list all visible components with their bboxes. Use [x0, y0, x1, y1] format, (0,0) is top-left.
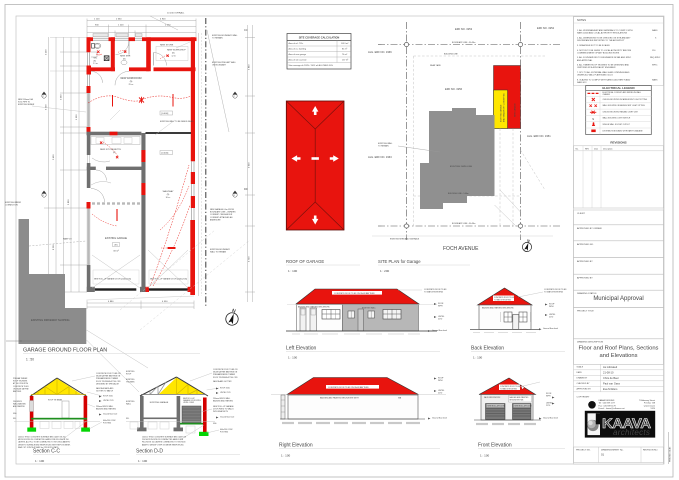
- svg-text:AND SHADEPORT CONVERTED: AND SHADEPORT CONVERTED: [503, 93, 506, 122]
- svg-text:P.O.Box 748: P.O.Box 748: [644, 403, 656, 405]
- svg-text:6 000: 6 000: [46, 104, 48, 110]
- svg-text:[0.000]: [0.000]: [162, 113, 169, 115]
- svg-text:LINTEL 2170: LINTEL 2170: [103, 400, 114, 402]
- svg-text:5. ALL FOUNDATIONS TO ENGINEER: 5. ALL FOUNDATIONS TO ENGINEERS DETAIL A…: [577, 56, 632, 59]
- svg-text:Paul van Gass: Paul van Gass: [603, 381, 621, 385]
- svg-text:ALG. ERF NO. 1966: ALG. ERF NO. 1966: [368, 50, 392, 54]
- svg-text:ROOF OF GARAGE: ROOF OF GARAGE: [286, 259, 324, 264]
- svg-text:ROOF TRUSSES AT 760 CRS: ROOF TRUSSES AT 760 CRS: [96, 380, 121, 383]
- svg-text:WPH: WPH: [546, 396, 551, 398]
- svg-text:[0.000]: [0.000]: [162, 153, 169, 155]
- svg-text:NOTES: NOTES: [577, 18, 586, 22]
- svg-text:WPH: WPH: [549, 306, 554, 308]
- svg-text:2. ALL DIMENSIONS TO BE CHECKE: 2. ALL DIMENSIONS TO BE CHECKED ON SITE …: [577, 37, 631, 40]
- svg-text:230mm BRICK WALL: 230mm BRICK WALL: [96, 405, 113, 408]
- svg-text:33 m²: 33 m²: [113, 250, 119, 253]
- svg-text:SPEC: SPEC: [652, 65, 658, 67]
- svg-text:LINTEL 2170: LINTEL 2170: [220, 392, 231, 394]
- svg-text:4 900: 4 900: [160, 19, 166, 21]
- svg-text:EXISTING KERB AND SIDEWALK: EXISTING KERB AND SIDEWALK: [390, 238, 420, 241]
- svg-text:FACE BRICKWORK: FACE BRICKWORK: [484, 396, 501, 399]
- svg-text:(N): (N): [130, 81, 133, 83]
- svg-text:ERF NO. 1952: ERF NO. 1952: [537, 26, 555, 30]
- svg-text:BRICKWORK NIB: BRICKWORK NIB: [510, 399, 525, 401]
- svg-text:NEW 110mm DIA: NEW 110mm DIA: [18, 98, 34, 101]
- svg-text:CEILING MOUNTED INCANDESCENT L: CEILING MOUNTED INCANDESCENT LIGHT FITTI…: [603, 98, 648, 101]
- svg-text:CC: CC: [244, 29, 248, 32]
- svg-text:EXISTING GARAGE: EXISTING GARAGE: [105, 237, 127, 240]
- svg-text:1013 m²: 1013 m²: [341, 42, 349, 45]
- svg-text:PREFABRICATED TIMBER: PREFABRICATED TIMBER: [96, 377, 119, 380]
- svg-text:BATTENS: BATTENS: [13, 390, 22, 393]
- svg-text:MICRON DPM ON COMPACTED HARDCO: MICRON DPM ON COMPACTED HARDCORE FILLING…: [18, 438, 69, 441]
- svg-text:21-08-10: 21-08-10: [603, 370, 614, 374]
- svg-text:2170: 2170: [438, 393, 442, 395]
- svg-text:ALG. ERF NO. 1951: ALG. ERF NO. 1951: [527, 134, 551, 138]
- svg-text:PROJECT NO.: PROJECT NO.: [576, 450, 591, 452]
- svg-text:7 Blakeway Street: 7 Blakeway Street: [639, 399, 656, 402]
- svg-text:3 400: 3 400: [53, 154, 55, 160]
- svg-text:WITH BRACKETS: WITH BRACKETS: [213, 410, 229, 413]
- svg-text:BOUNDARY LINE - 30.48m: BOUNDARY LINE - 30.48m: [452, 222, 476, 225]
- svg-text:FOOTING: FOOTING: [103, 423, 112, 425]
- svg-text:30 m²: 30 m²: [166, 196, 171, 199]
- svg-text:Eva M Allers: Eva M Allers: [603, 387, 618, 391]
- svg-text:APPROVED NO.: APPROVED NO.: [577, 243, 594, 246]
- svg-text:2170: 2170: [438, 319, 442, 321]
- svg-text:Right Elevation: Right Elevation: [279, 443, 313, 449]
- svg-text:Ground floor level: Ground floor level: [543, 327, 559, 330]
- svg-text:1 : 200: 1 : 200: [380, 269, 390, 273]
- svg-text:4 550: 4 550: [162, 301, 168, 303]
- svg-text:EXISTING DRIVEWAY SLOPING: EXISTING DRIVEWAY SLOPING: [31, 318, 70, 322]
- svg-text:CEILING MOUNTED FAN AND LIGHT: CEILING MOUNTED FAN AND LIGHT UNIT: [603, 110, 639, 113]
- svg-text:7. DPC TO ALL EXTERNAL WALLS A: 7. DPC TO ALL EXTERNAL WALLS AND OPENING…: [577, 71, 630, 74]
- svg-text:Area of ex. dwelling: Area of ex. dwelling: [289, 48, 306, 51]
- svg-text:AT 760 CRS WITH: AT 760 CRS WITH: [13, 382, 29, 385]
- svg-text:29 m²: 29 m²: [129, 83, 134, 86]
- svg-text:DISTRIBUTION BOARD WITH EARTH: DISTRIBUTION BOARD WITH EARTH LEAKAGE: [603, 129, 644, 132]
- svg-text:NEW ROLL-UP GARAGE DOOR (2440x: NEW ROLL-UP GARAGE DOOR (2440x2135): [94, 278, 132, 281]
- svg-text:1 : 100: 1 : 100: [35, 459, 45, 463]
- svg-text:3 360: 3 360: [61, 94, 63, 100]
- svg-text:No.: No.: [576, 148, 579, 150]
- svg-text:DISCREPANCIES REPORTED TO THE: DISCREPANCIES REPORTED TO THE ARCHITECT: [577, 39, 625, 42]
- svg-text:APPROVED BY OWNER: APPROVED BY OWNER: [577, 227, 602, 230]
- svg-text:NGL: NGL: [13, 413, 17, 415]
- svg-text:and Elevations: and Elevations: [599, 353, 637, 359]
- svg-text:ELECTRICAL LEGEND: ELECTRICAL LEGEND: [602, 86, 635, 90]
- svg-text:2170: 2170: [549, 317, 553, 319]
- svg-text:2170: 2170: [546, 405, 550, 407]
- svg-text:1 100: 1 100: [94, 19, 100, 21]
- svg-text:COMMENCEMENT OF ANY BUILDING W: COMMENCEMENT OF ANY BUILDING WORK: [577, 51, 620, 54]
- svg-text:CONNECTION: CONNECTION: [5, 205, 18, 207]
- svg-text:3. DRAWINGS NOT TO BE SCALED: 3. DRAWINGS NOT TO BE SCALED: [577, 44, 610, 47]
- svg-text:TO MATCH EXISTING: TO MATCH EXISTING: [424, 291, 444, 294]
- svg-text:DENSITY. SURFACE BED REINFORCE: DENSITY. SURFACE BED REINFORCED WITH REF…: [18, 443, 71, 446]
- svg-text:EXISTING GARAGE: EXISTING GARAGE: [150, 401, 169, 404]
- svg-text:2 360: 2 360: [116, 19, 122, 21]
- svg-text:NEW ROLL-UP GARAGE: NEW ROLL-UP GARAGE: [213, 405, 234, 408]
- svg-text:ALG. ERF NO. 1963: ALG. ERF NO. 1963: [368, 155, 392, 159]
- svg-text:10 230 OVERALL: 10 230 OVERALL: [167, 12, 185, 15]
- svg-text:TO MATCH EXISTING: TO MATCH EXISTING: [500, 387, 518, 390]
- svg-text:38x38 SA PINE BATTENS ON: 38x38 SA PINE BATTENS ON: [96, 375, 121, 378]
- svg-text:SANS: SANS: [652, 78, 658, 81]
- svg-text:DRAWING/SHEET No.: DRAWING/SHEET No.: [601, 449, 624, 452]
- svg-text:TO REMAIN: TO REMAIN: [378, 145, 389, 148]
- svg-text:DRAWING STATUS: DRAWING STATUS: [577, 292, 597, 295]
- svg-text:4 880: 4 880: [108, 301, 114, 303]
- svg-text:EXISTING BOUNDARY WALL: EXISTING BOUNDARY WALL: [212, 34, 238, 37]
- svg-text:E-mail : kaava@telkomsa.net: E-mail : kaava@telkomsa.net: [599, 407, 625, 410]
- svg-text:As indicated: As indicated: [603, 365, 618, 369]
- svg-text:ON 38x38 SA PINE: ON 38x38 SA PINE: [13, 387, 29, 390]
- svg-text:(E): (E): [115, 245, 118, 247]
- svg-text:76 m²: 76 m²: [342, 53, 347, 56]
- svg-text:DOOR FIXED TO WALLS: DOOR FIXED TO WALLS: [213, 408, 234, 411]
- svg-text:DATE: DATE: [577, 371, 583, 374]
- svg-text:FILLING IN 150 LAYERS COMPACTE: FILLING IN 150 LAYERS COMPACTED TO 93% M…: [142, 441, 186, 444]
- svg-text:FOOTING: FOOTING: [220, 432, 229, 434]
- svg-text:AND APPROVAL: AND APPROVAL: [577, 59, 593, 62]
- svg-text:TO REMAIN: TO REMAIN: [212, 37, 223, 40]
- svg-text:FOCH AVENUE: FOCH AVENUE: [443, 246, 479, 252]
- svg-text:s: s: [592, 117, 594, 121]
- svg-text:250 MICRON DPM ON COMPACTED HA: 250 MICRON DPM ON COMPACTED HARDCORE: [142, 438, 184, 441]
- svg-text:WALL MOUNTED INCANDESCENT LIGH: WALL MOUNTED INCANDESCENT LIGHT FITTING: [603, 104, 646, 107]
- svg-text:FASCIA BOARD AND: FASCIA BOARD AND: [96, 387, 114, 390]
- svg-text:TO MATCH EXISTING: TO MATCH EXISTING: [544, 291, 564, 294]
- svg-text:EXISTING GARAGE: EXISTING GARAGE: [500, 104, 503, 122]
- svg-text:WALL TO REMAIN: WALL TO REMAIN: [210, 251, 227, 254]
- svg-text:5 800: 5 800: [68, 199, 70, 205]
- svg-text:CONCRETE ROOF TILES ON 38x38 B: CONCRETE ROOF TILES ON 38x38 BATTENS: [328, 386, 369, 389]
- svg-text:DRAWING DESCRIPTION: DRAWING DESCRIPTION: [577, 341, 603, 344]
- svg-text:NEW ROLL-UP DOOR: NEW ROLL-UP DOOR: [515, 406, 533, 408]
- svg-text:FFL: FFL: [126, 418, 129, 420]
- svg-text:1. ALL WORKMANSHIP AND MATERIA: 1. ALL WORKMANSHIP AND MATERIALS TO COMP…: [577, 29, 633, 32]
- svg-text:TRUSSES: TRUSSES: [126, 382, 135, 384]
- svg-text:GUTTER TO MATCH: GUTTER TO MATCH: [96, 390, 114, 393]
- svg-text:EXISTING WATER: EXISTING WATER: [5, 201, 22, 204]
- svg-text:CHASED: CHASED: [603, 93, 611, 96]
- svg-text:SINGLE WALL SOCKET OUTLET: SINGLE WALL SOCKET OUTLET: [603, 123, 631, 126]
- svg-text:FASCIA AND GUTTER: FASCIA AND GUTTER: [213, 380, 232, 383]
- svg-text:Municipal Approval: Municipal Approval: [593, 296, 643, 302]
- svg-text:WALL MOUNTED LIGHT SWITCH: WALL MOUNTED LIGHT SWITCH: [603, 117, 631, 120]
- svg-text:COPYRIGHT: COPYRIGHT: [577, 396, 591, 398]
- svg-text:9 900: 9 900: [249, 162, 251, 168]
- svg-text:LINTEL OVER: LINTEL OVER: [183, 402, 195, 404]
- svg-text:NGL: NGL: [213, 423, 217, 425]
- svg-text:DD: DD: [244, 188, 248, 191]
- svg-text:NEW STORE: NEW STORE: [160, 45, 174, 47]
- svg-text:Ground floor level: Ground floor level: [220, 417, 235, 419]
- svg-text:NEW ROLL-UP DOOR: NEW ROLL-UP DOOR: [488, 406, 506, 408]
- svg-text:1 : 100: 1 : 100: [281, 454, 291, 458]
- svg-text:BAGGED AND PAINTED BRICKWORK W: BAGGED AND PAINTED BRICKWORK WITH: [320, 396, 359, 399]
- svg-text:REQ SPEC: REQ SPEC: [650, 57, 661, 59]
- svg-text:LAYERS. ALL FILL TO BE COMPACT: LAYERS. ALL FILL TO BE COMPACTED TO 93% …: [18, 441, 71, 444]
- svg-text:BUILDING LINE - 5.00m: BUILDING LINE - 5.00m: [448, 193, 469, 195]
- svg-text:CONSENT ATTACHED AS: CONSENT ATTACHED AS: [210, 216, 233, 219]
- svg-text:157 m²: 157 m²: [342, 59, 349, 62]
- svg-text:Ground floor level: Ground floor level: [432, 417, 448, 420]
- svg-text:GARAGE GROUND FLOOR PLAN: GARAGE GROUND FLOOR PLAN: [23, 348, 107, 354]
- svg-text:5 860: 5 860: [249, 64, 251, 70]
- svg-text:Area of site covered: Area of site covered: [289, 59, 307, 62]
- svg-text:Ground floor level: Ground floor level: [103, 414, 118, 416]
- svg-text:WALL: WALL: [126, 403, 131, 406]
- svg-text:Date: Date: [594, 147, 598, 150]
- svg-text:PREFAB TIMBER: PREFAB TIMBER: [13, 377, 28, 380]
- svg-text:Ground floor level: Ground floor level: [432, 329, 448, 332]
- svg-text:NEW KITCHENETTE: NEW KITCHENETTE: [100, 149, 121, 151]
- svg-text:PROJECT TITLE: PROJECT TITLE: [577, 311, 594, 313]
- svg-text:Site coverage of 41.8% / 1013: Site coverage of 41.8% / 1013 m² ALLOWED…: [289, 64, 334, 67]
- svg-text:01: 01: [601, 453, 605, 457]
- svg-text:Chris de Beer: Chris de Beer: [603, 376, 619, 380]
- svg-text:12 m²: 12 m²: [172, 55, 177, 58]
- svg-text:Ground floor level: Ground floor level: [543, 417, 559, 420]
- svg-text:BOUNDARY LINE - 30.48m: BOUNDARY LINE - 30.48m: [452, 41, 476, 44]
- svg-text:EXISTING WALL: EXISTING WALL: [362, 307, 376, 310]
- svg-text:CHECKED BY: CHECKED BY: [577, 383, 591, 385]
- svg-text:EXISTING WALL: EXISTING WALL: [378, 142, 392, 145]
- svg-text:NEW SHR: NEW SHR: [120, 56, 131, 58]
- svg-text:Left Elevation: Left Elevation: [286, 346, 317, 352]
- svg-text:1 : 50: 1 : 50: [26, 358, 34, 362]
- svg-text:WALL BAGGED: WALL BAGGED: [13, 403, 27, 406]
- svg-text:REVISION NO.: REVISION NO.: [643, 450, 658, 452]
- svg-text:3 200: 3 200: [46, 49, 48, 55]
- svg-text:1 000: 1 000: [76, 114, 78, 120]
- svg-text:architects: architects: [613, 428, 650, 437]
- svg-text:ERF NO. 1953: ERF NO. 1953: [455, 27, 473, 31]
- svg-text:BAGGED AND PAINTED: BAGGED AND PAINTED: [96, 408, 117, 411]
- svg-text:8. GLAZING TO COMPLY WITH SANS: 8. GLAZING TO COMPLY WITH SANS 10400 PAR…: [577, 78, 631, 81]
- svg-text:NEW GARAGE: NEW GARAGE: [514, 103, 517, 117]
- svg-text:1 : 100: 1 : 100: [473, 356, 483, 360]
- svg-text:ROOF 2565: ROOF 2565: [103, 396, 113, 398]
- svg-text:Queenstown: Queenstown: [644, 404, 655, 407]
- svg-text:CERTIFIED BY A SPECIALIST ENGI: CERTIFIED BY A SPECIALIST ENGINEER: [577, 66, 616, 69]
- svg-text:1 200: 1 200: [118, 25, 124, 27]
- svg-text:8 200: 8 200: [53, 244, 55, 250]
- svg-text:EXISTING PRECAST WALL: EXISTING PRECAST WALL: [212, 61, 236, 64]
- svg-text:ERF NO. 1956: ERF NO. 1956: [445, 87, 463, 91]
- svg-text:NEW ROLL-UP GARAGE DOOR (2440x: NEW ROLL-UP GARAGE DOOR (2440x2135): [150, 278, 188, 281]
- svg-text:DRAWN BY: DRAWN BY: [577, 377, 588, 380]
- svg-text:SANS 10400 AND LOCAL AUTHORITY: SANS 10400 AND LOCAL AUTHORITY REGULATIO…: [577, 32, 628, 35]
- svg-text:AASHTO DENSITY. REF 193 MESH R: AASHTO DENSITY. REF 193 MESH REINFORCED.: [142, 443, 185, 446]
- svg-text:(N): (N): [167, 194, 170, 196]
- svg-text:SANS: SANS: [652, 29, 658, 32]
- svg-text:Section C-C: Section C-C: [33, 449, 60, 455]
- svg-text:APPROVED BY: APPROVED BY: [577, 260, 593, 263]
- svg-text:ROOF TRUSSES AT 760 CRS: ROOF TRUSSES AT 760 CRS: [213, 376, 238, 379]
- svg-text:Area of new garage: Area of new garage: [289, 53, 307, 56]
- svg-text:SITE PLAN for Garage: SITE PLAN for Garage: [378, 259, 421, 264]
- svg-text:CLIENT: CLIENT: [577, 213, 585, 215]
- svg-text:2.1 m²: 2.1 m²: [93, 62, 98, 65]
- svg-text:Area of erf: 713c: Area of erf: 713c: [289, 42, 304, 45]
- svg-text:RAMP 1:8: RAMP 1:8: [63, 238, 72, 241]
- svg-text:APPROVED BY: APPROVED BY: [577, 276, 593, 279]
- svg-text:ANNEXURE: ANNEXURE: [210, 218, 221, 221]
- svg-text:ROOF TIE BEAM: ROOF TIE BEAM: [48, 399, 63, 402]
- svg-text:Section D-D: Section D-D: [136, 449, 163, 455]
- svg-text:NEW WORKSHOP: NEW WORKSHOP: [167, 50, 186, 52]
- svg-text:Fax : 045 839 1178: Fax : 045 839 1178: [599, 405, 617, 407]
- svg-text:ON BOUNDARY: ON BOUNDARY: [212, 64, 227, 67]
- svg-text:Back Elevation: Back Elevation: [471, 346, 504, 352]
- svg-text:BOUNDARY LINE - OWNERS: BOUNDARY LINE - OWNERS: [210, 211, 236, 214]
- svg-text:6 700: 6 700: [249, 256, 251, 262]
- svg-text:6. ALL TIMBER ROOF TRUSSES TO: 6. ALL TIMBER ROOF TRUSSES TO BE DESIGNE…: [577, 64, 630, 67]
- svg-text:SCALE: SCALE: [577, 366, 584, 369]
- svg-text:TO MATCH EXISTING: TO MATCH EXISTING: [494, 298, 512, 301]
- svg-text:AND PAINTED: AND PAINTED: [13, 405, 26, 408]
- svg-text:WPH: WPH: [438, 380, 443, 382]
- svg-text:EXISTING DWELLING: EXISTING DWELLING: [450, 166, 473, 168]
- svg-text:BUILDING LINE: BUILDING LINE: [444, 54, 458, 56]
- svg-text:1 : 100: 1 : 100: [480, 454, 490, 458]
- svg-text:(E): (E): [94, 60, 97, 62]
- svg-text:CONCRETE ROOF TILES ON 38x38 B: CONCRETE ROOF TILES ON 38x38 BATTENS: [334, 292, 375, 295]
- svg-text:FFL: FFL: [13, 418, 16, 420]
- svg-text:WC: WC: [94, 58, 98, 60]
- svg-text:KAAVA DESIGNS: KAAVA DESIGNS: [599, 399, 615, 402]
- svg-text:PREFABRICATED TIMBER: PREFABRICATED TIMBER: [213, 373, 236, 376]
- svg-text:SITE COVERAGE CALCULATION: SITE COVERAGE CALCULATION: [299, 36, 340, 40]
- svg-text:DESIGNED BY SPECIALIST: DESIGNED BY SPECIALIST: [96, 382, 120, 385]
- svg-text:Tel : 045 839 1177: Tel : 045 839 1177: [599, 403, 616, 405]
- svg-text:WPH: WPH: [438, 306, 443, 308]
- svg-text:EXISTING BOUNDARY: EXISTING BOUNDARY: [210, 248, 231, 251]
- svg-text:1 : 100: 1 : 100: [138, 459, 148, 463]
- svg-text:(N): (N): [113, 152, 116, 154]
- svg-text:NEW GARAGE 0.0m FROM: NEW GARAGE 0.0m FROM: [210, 208, 234, 211]
- svg-text:4. NOTICE TO BE GIVEN TO LOCAL: 4. NOTICE TO BE GIVEN TO LOCAL AUTHORITY…: [577, 49, 632, 52]
- svg-text:BAGGED AND PAINTED BRICKWORK: BAGGED AND PAINTED BRICKWORK: [482, 306, 514, 309]
- svg-text:100mm THICK CONCRETE SURFACE B: 100mm THICK CONCRETE SURFACE BED CAST ON…: [18, 436, 66, 439]
- svg-text:230mm BRICK WALL: 230mm BRICK WALL: [213, 397, 230, 400]
- svg-text:SANS 613: SANS 613: [577, 81, 587, 84]
- svg-text:ROOF 2565: ROOF 2565: [220, 388, 230, 390]
- svg-text:81 m²: 81 m²: [342, 48, 347, 51]
- svg-text:100mm THICK CONCRETE SURFACE B: 100mm THICK CONCRETE SURFACE BED CAST ON: [142, 436, 187, 439]
- svg-text:EXISTING WALL TO BE DEMOLISHED: EXISTING WALL TO BE DEMOLISHED: [160, 120, 194, 123]
- svg-text:1 : 100: 1 : 100: [288, 356, 298, 360]
- svg-text:UNDER ALL WALL PLATES AND CILL: UNDER ALL WALL PLATES AND CILLS: [577, 74, 613, 77]
- svg-text:REAR YARD: REAR YARD: [430, 64, 441, 67]
- svg-text:BAGGED AND PAINTED: BAGGED AND PAINTED: [213, 400, 234, 403]
- svg-text:Front Elevation: Front Elevation: [478, 443, 512, 449]
- svg-text:Description: Description: [603, 147, 612, 150]
- svg-text:ROOF: ROOF: [126, 374, 132, 376]
- svg-text:NEW WORKROOM: NEW WORKROOM: [120, 77, 141, 80]
- svg-text:Floor and Roof Plans, Sections: Floor and Roof Plans, Sections: [579, 345, 659, 351]
- svg-text:(N): (N): [172, 53, 175, 55]
- svg-text:REVISIONS: REVISIONS: [610, 141, 626, 145]
- svg-text:1 : 100: 1 : 100: [288, 269, 298, 273]
- svg-text:APPROVED BY: APPROVED BY: [577, 388, 592, 391]
- svg-text:PRINTED ON A3: PRINTED ON A3: [669, 446, 672, 462]
- svg-text:38x38 SA PINE BATTENS ON: 38x38 SA PINE BATTENS ON: [213, 371, 238, 374]
- svg-text:WALKWAY: WALKWAY: [163, 190, 174, 193]
